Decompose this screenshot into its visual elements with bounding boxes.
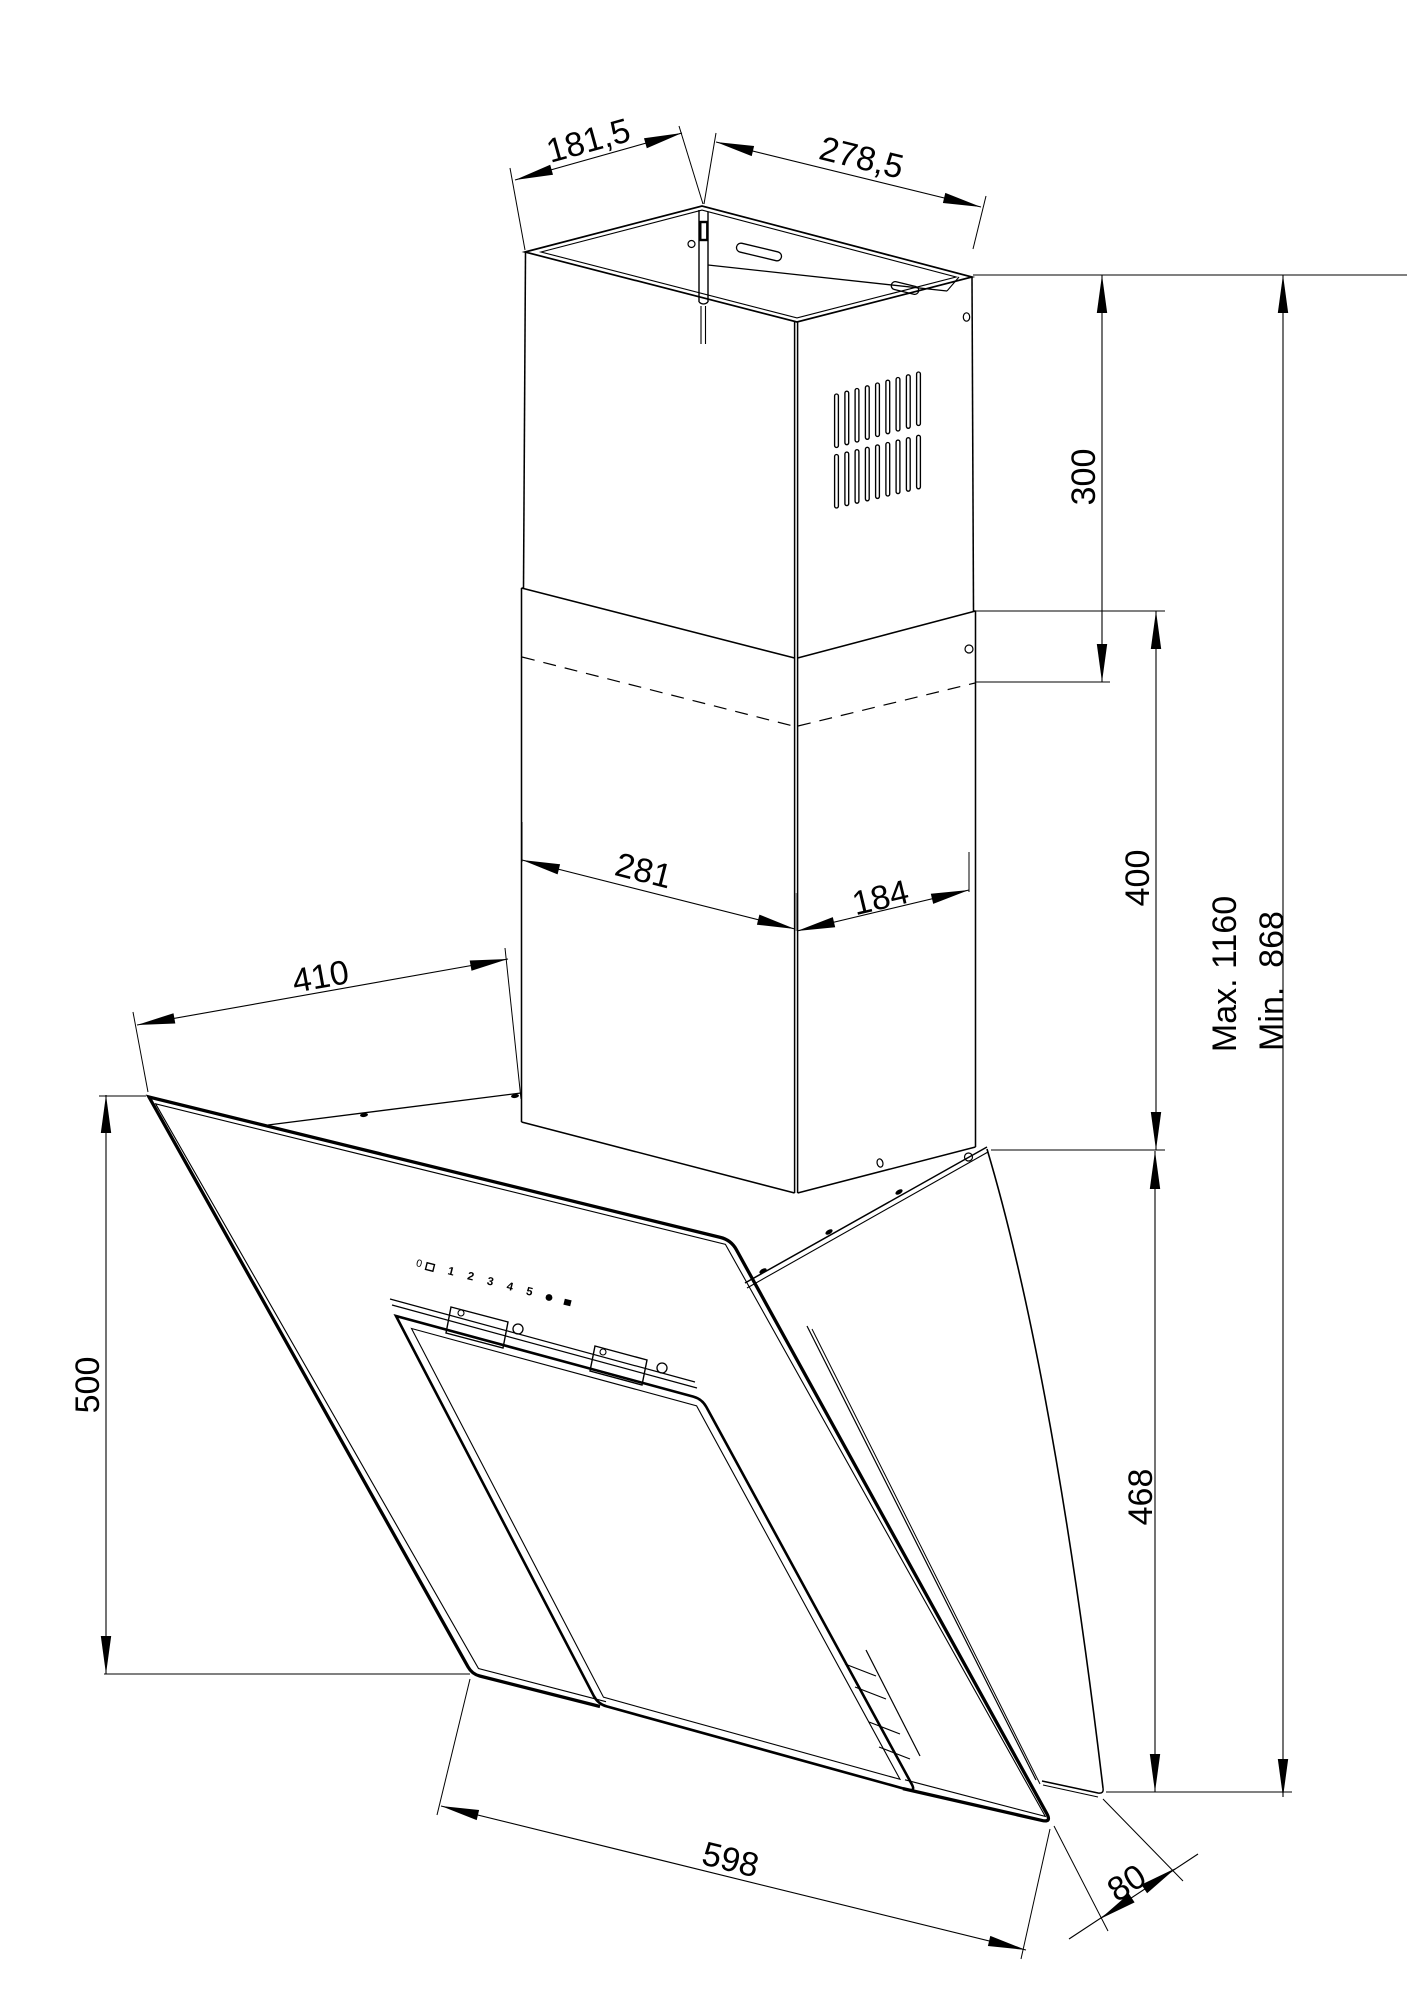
svg-text:468: 468 — [1122, 1469, 1160, 1526]
svg-text:500: 500 — [69, 1357, 107, 1414]
svg-text:Max. 1160: Max. 1160 — [1206, 896, 1244, 1052]
svg-text:Min. 868: Min. 868 — [1253, 911, 1291, 1051]
svg-text:400: 400 — [1119, 850, 1157, 907]
svg-text:300: 300 — [1065, 449, 1103, 506]
